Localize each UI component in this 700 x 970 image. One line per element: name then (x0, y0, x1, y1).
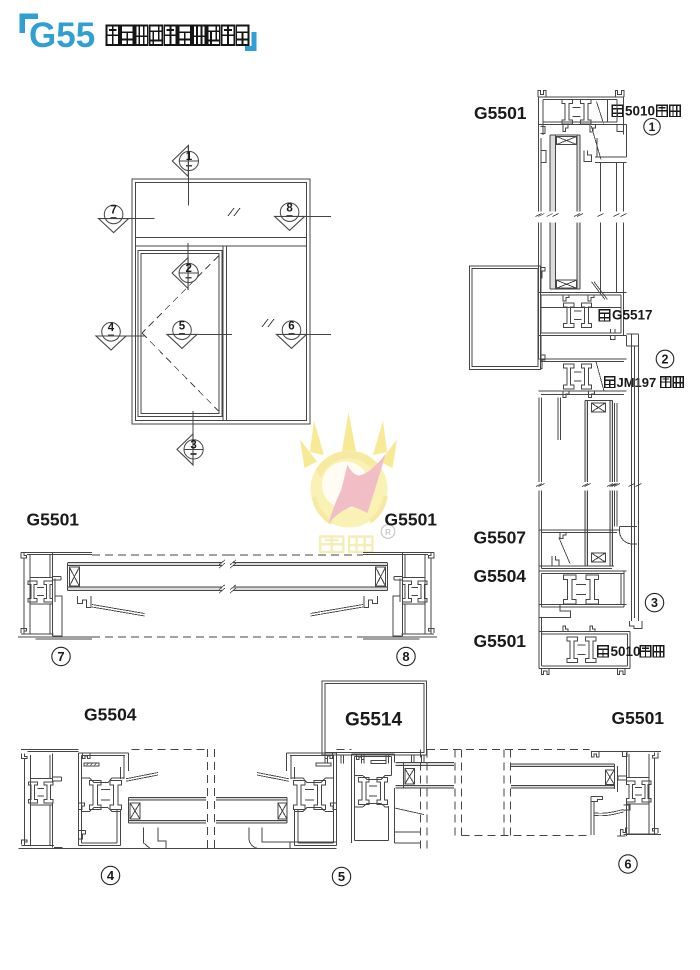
svg-text:G5504: G5504 (84, 705, 137, 725)
svg-text:4: 4 (108, 322, 115, 334)
svg-text:8: 8 (402, 649, 409, 664)
svg-text:G5504: G5504 (474, 566, 527, 586)
svg-text:JM197: JM197 (617, 375, 657, 390)
svg-text:2: 2 (185, 263, 191, 275)
svg-text:G5501: G5501 (385, 510, 438, 530)
svg-text:1: 1 (649, 120, 656, 134)
svg-text:7: 7 (110, 205, 116, 217)
svg-text:5010: 5010 (611, 644, 641, 659)
svg-text:G5514: G5514 (345, 710, 402, 731)
svg-text:5: 5 (179, 320, 186, 332)
svg-text:1: 1 (186, 151, 193, 163)
svg-text:G5501: G5501 (612, 708, 665, 728)
svg-text:6: 6 (624, 857, 631, 872)
svg-text:G5517: G5517 (612, 308, 653, 323)
svg-text:5: 5 (338, 869, 345, 884)
svg-text:G55: G55 (29, 16, 95, 55)
svg-text:8: 8 (286, 202, 293, 214)
svg-text:4: 4 (107, 868, 115, 883)
svg-text:G5501: G5501 (27, 510, 80, 530)
svg-text:3: 3 (190, 440, 196, 452)
svg-text:G5501: G5501 (474, 103, 527, 123)
svg-text:6: 6 (288, 320, 294, 332)
svg-text:2: 2 (662, 353, 669, 367)
svg-text:7: 7 (57, 649, 64, 664)
svg-text:3: 3 (651, 596, 658, 610)
svg-text:G5507: G5507 (474, 528, 527, 548)
svg-text:5010: 5010 (625, 104, 655, 119)
svg-text:G5501: G5501 (474, 631, 527, 651)
